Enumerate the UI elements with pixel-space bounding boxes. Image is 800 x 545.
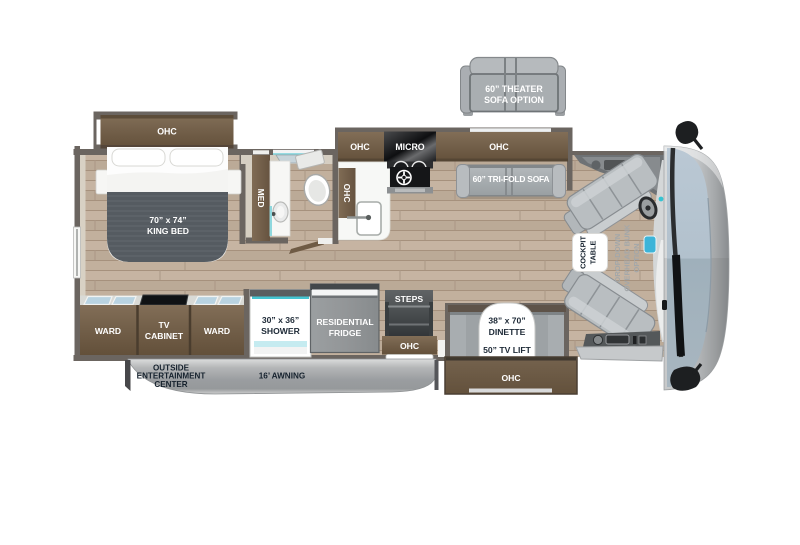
svg-text:60” THEATER: 60” THEATER [485, 84, 543, 94]
svg-text:OHC: OHC [489, 142, 509, 152]
svg-text:TV: TV [159, 320, 170, 330]
svg-text:OVERHEAD BUNK: OVERHEAD BUNK [623, 224, 632, 292]
svg-text:MICRO: MICRO [395, 142, 424, 152]
svg-text:OHC: OHC [342, 184, 352, 203]
svg-text:KING BED: KING BED [147, 226, 189, 236]
svg-text:MED: MED [256, 189, 266, 208]
svg-text:50” TV LIFT: 50” TV LIFT [483, 345, 531, 355]
svg-text:DROP-DOWN: DROP-DOWN [613, 234, 622, 283]
svg-text:COCKPIT: COCKPIT [579, 236, 588, 269]
svg-text:OHC: OHC [501, 373, 520, 383]
svg-text:RESIDENTIAL: RESIDENTIAL [316, 317, 373, 327]
svg-text:SOFA OPTION: SOFA OPTION [484, 95, 544, 105]
svg-text:30” x 36”: 30” x 36” [262, 315, 299, 325]
svg-text:STEPS: STEPS [395, 294, 423, 304]
svg-text:WARD: WARD [95, 326, 121, 336]
svg-text:38” x 70”: 38” x 70” [488, 316, 525, 326]
svg-text:70” x 74”: 70” x 74” [149, 215, 186, 225]
svg-text:OHC: OHC [157, 127, 177, 137]
svg-text:FRIDGE: FRIDGE [329, 328, 362, 338]
svg-text:TABLE: TABLE [589, 240, 598, 264]
svg-text:CENTER: CENTER [154, 380, 187, 389]
svg-text:60” TRI-FOLD SOFA: 60” TRI-FOLD SOFA [473, 174, 550, 184]
svg-text:SHOWER: SHOWER [261, 326, 300, 336]
svg-text:CABINET: CABINET [145, 331, 184, 341]
svg-text:OPTION: OPTION [632, 243, 641, 272]
svg-text:OHC: OHC [400, 341, 419, 351]
svg-text:OHC: OHC [350, 142, 370, 152]
svg-text:WARD: WARD [204, 326, 230, 336]
svg-text:16’ AWNING: 16’ AWNING [259, 372, 306, 381]
svg-text:DINETTE: DINETTE [489, 327, 526, 337]
